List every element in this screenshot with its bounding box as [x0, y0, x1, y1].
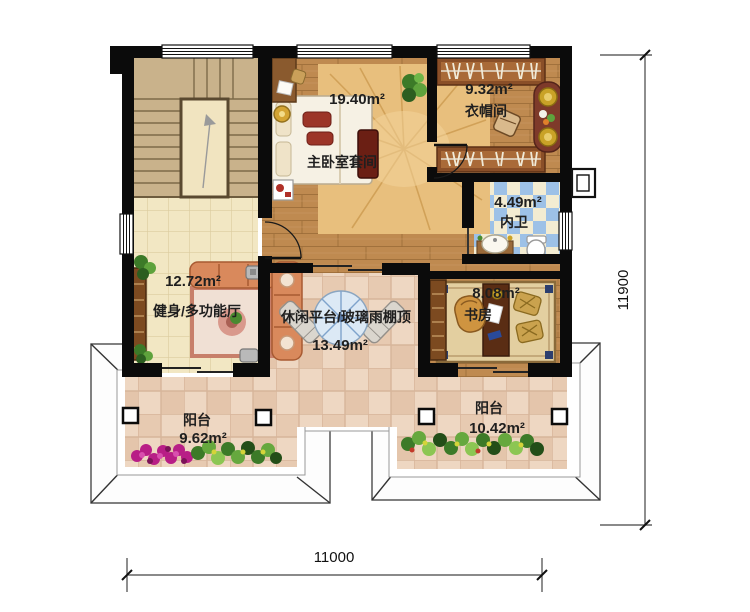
label-study-name: 书房: [464, 307, 492, 323]
label-gym-name: 健身/多功能厅: [153, 303, 241, 319]
label-bath-name: 内卫: [500, 214, 528, 230]
label-cloak-name: 衣帽间: [465, 103, 507, 119]
dressing-table: [534, 82, 562, 152]
label-terrace-name: 休闲平台/玻璃雨棚顶: [280, 309, 411, 325]
label-study-area: 8.08m²: [472, 285, 520, 302]
gym-speaker-bottom: [240, 349, 258, 362]
wardrobe-rack-bottom: [437, 147, 545, 172]
window-top-1: [162, 45, 253, 58]
floor-plan-canvas: 19.40m² 主卧室套间 9.32m² 衣帽间 4.49m² 内卫 8.08m…: [0, 0, 750, 612]
floor-plan-drawing: 19.40m² 主卧室套间 9.32m² 衣帽间 4.49m² 内卫 8.08m…: [0, 0, 750, 612]
terrace-floor-lower: [297, 377, 397, 427]
label-cloak-area: 9.32m²: [465, 81, 513, 98]
window-top-3: [437, 45, 530, 58]
dimension-right: 11900: [600, 50, 652, 530]
label-gym-area: 12.72m²: [165, 273, 221, 290]
label-master-area: 19.40m²: [329, 91, 385, 108]
label-bath-area: 4.49m²: [494, 194, 542, 211]
sink: [482, 235, 508, 253]
stair-void: [181, 99, 228, 197]
bookshelf: [430, 280, 446, 360]
flue-box: [572, 169, 595, 197]
bedroom-device: [273, 180, 293, 200]
label-master-name: 主卧室套间: [307, 154, 377, 170]
dimension-width-value: 11000: [314, 549, 355, 566]
dimension-height-value: 11900: [615, 270, 632, 311]
dimension-bottom: 11000: [122, 549, 547, 592]
stairwell: [133, 57, 262, 197]
label-balcony-right-name: 阳台: [475, 400, 503, 416]
label-terrace-area: 13.49m²: [312, 337, 368, 354]
label-balcony-left-name: 阳台: [183, 412, 211, 428]
window-top-2: [297, 45, 392, 58]
label-balcony-right-area: 10.42m²: [469, 420, 525, 437]
window-bath-right: [559, 212, 572, 250]
window-left: [120, 214, 133, 254]
label-balcony-left-area: 9.62m²: [179, 430, 227, 447]
